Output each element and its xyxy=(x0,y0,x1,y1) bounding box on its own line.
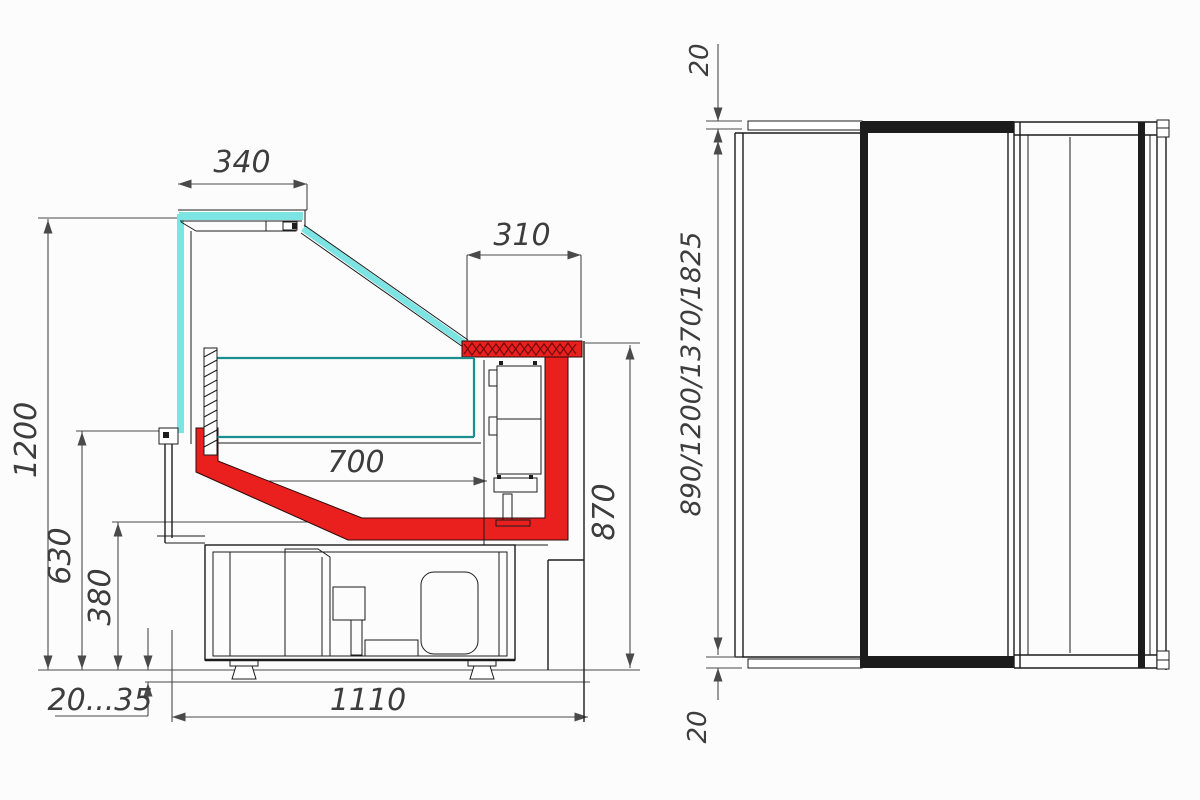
dim-label-310: 310 xyxy=(493,218,550,253)
front-view-frame xyxy=(735,120,1169,670)
top-glass-canopy xyxy=(179,212,303,220)
dim-label-380: 380 xyxy=(83,568,118,625)
dim-label-heights: 890/1200/1370/1825 xyxy=(676,232,707,517)
dim-label-630: 630 xyxy=(43,527,78,584)
dim-label-1110: 1110 xyxy=(330,683,406,718)
right-mullion xyxy=(1138,122,1145,668)
center-mullion xyxy=(860,122,868,668)
rear-shelf-unit xyxy=(489,361,541,526)
front-glass xyxy=(177,214,184,433)
slanted-glass xyxy=(301,226,467,346)
red-elements xyxy=(196,341,582,540)
dim-label-20-top: 20 xyxy=(685,43,715,76)
dim-label-20-bottom: 20 xyxy=(683,710,713,743)
front-dimension-lines xyxy=(706,44,742,700)
dim-label-1200: 1200 xyxy=(9,402,44,478)
dim-label-20-35: 20...35 xyxy=(48,683,153,718)
compressor xyxy=(421,572,478,654)
technical-drawing-canvas: 340 310 700 1200 630 380 20...35 1110 87… xyxy=(0,0,1200,800)
electrical-box xyxy=(333,587,365,620)
front-view xyxy=(706,44,1169,700)
canopy-lamp xyxy=(266,221,297,231)
dim-label-340: 340 xyxy=(213,145,270,180)
machinery-compartment xyxy=(205,545,515,679)
dim-label-700: 700 xyxy=(327,445,384,480)
dim-label-870: 870 xyxy=(587,483,622,540)
glass-elements xyxy=(177,210,468,444)
